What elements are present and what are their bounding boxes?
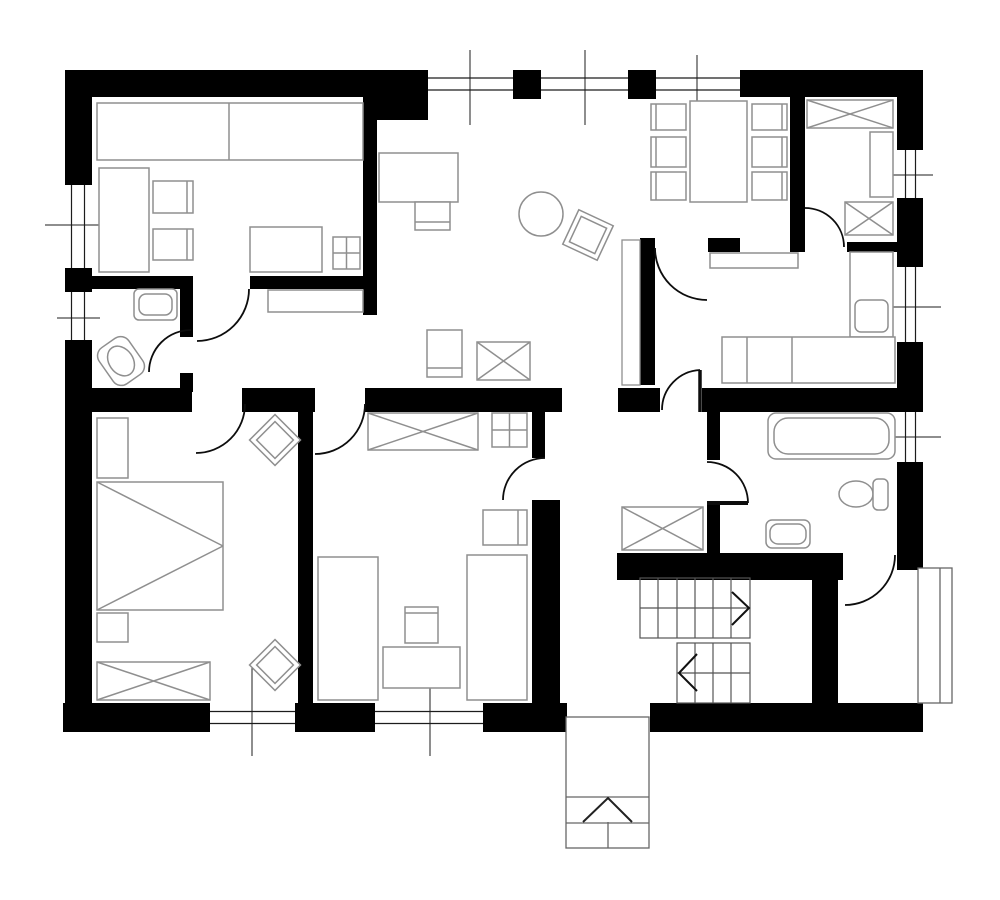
wall-room3-east-upper xyxy=(532,412,545,458)
outer-left-wall-lower xyxy=(65,340,92,732)
bed-single xyxy=(250,227,322,272)
desk xyxy=(99,168,149,272)
outer-right-wall-1 xyxy=(897,70,923,150)
wall-kitchen-south xyxy=(708,238,740,252)
bed-double xyxy=(97,482,223,610)
floor-plan-page xyxy=(0,0,1000,900)
floor-plan-svg xyxy=(0,0,1000,900)
outer-bottom-wall-4 xyxy=(650,703,923,732)
bed-pillow xyxy=(855,300,888,332)
wall-hall-north-1 xyxy=(88,388,192,412)
outer-top-wall-east xyxy=(740,70,923,97)
wall-bedroom2-east xyxy=(298,412,313,703)
bed-single xyxy=(467,555,527,700)
outer-top-wall-west xyxy=(65,70,428,97)
desk-chair xyxy=(415,202,450,230)
bath-sink-basin xyxy=(770,524,806,544)
wall-hall-north-4 xyxy=(618,388,660,412)
cabinet xyxy=(483,510,527,545)
outer-right-wall-2 xyxy=(897,198,923,267)
nightstand xyxy=(97,613,128,642)
rear-terrace xyxy=(918,568,952,703)
chimney-liner xyxy=(622,240,640,385)
wall-living-west xyxy=(363,95,377,315)
sofa xyxy=(722,337,895,383)
outer-bottom-wall-1 xyxy=(63,703,210,732)
wall-hall-north-3 xyxy=(365,388,562,412)
wall-hall-north-2 xyxy=(242,388,315,412)
round-table xyxy=(519,192,563,236)
wall-wc-north xyxy=(88,276,193,289)
wall-shelf xyxy=(710,253,798,268)
nightstand xyxy=(97,418,128,478)
outer-left-wall-upper xyxy=(65,70,92,185)
bathtub-basin xyxy=(774,418,889,454)
wall-room3-east-lower xyxy=(532,500,560,703)
wall-stairwell-east xyxy=(812,578,838,732)
desk xyxy=(383,647,460,688)
wall-bedroom1-south xyxy=(250,276,365,289)
outer-right-wall-3 xyxy=(897,342,923,412)
outer-bottom-wall-3 xyxy=(483,703,567,732)
desk xyxy=(379,153,458,202)
outer-bottom-wall-2 xyxy=(295,703,375,732)
dining-table xyxy=(690,101,747,202)
wall-bath-west-upper xyxy=(707,412,720,460)
chimney-wall xyxy=(640,238,655,385)
wall-pantry-south xyxy=(847,242,897,252)
bed-single xyxy=(318,557,378,700)
wardrobe xyxy=(97,103,363,160)
outer-left-wall-mid-pier xyxy=(65,268,92,292)
lounge-chair xyxy=(427,330,462,377)
tall-cabinet xyxy=(870,132,893,197)
top-window-pier-1 xyxy=(513,70,541,99)
toilet-bowl xyxy=(839,481,873,507)
sideboard xyxy=(268,290,363,312)
wall-bath-west-lower xyxy=(707,503,720,553)
wall-hall-north-5 xyxy=(702,388,897,412)
outer-right-wall-4 xyxy=(897,462,923,570)
top-window-pier-2 xyxy=(628,70,656,99)
toilet-tank xyxy=(873,479,888,510)
wall-stairwell-north xyxy=(617,553,843,580)
wall-pantry-west xyxy=(790,95,805,252)
wc-sink-basin xyxy=(139,294,172,315)
